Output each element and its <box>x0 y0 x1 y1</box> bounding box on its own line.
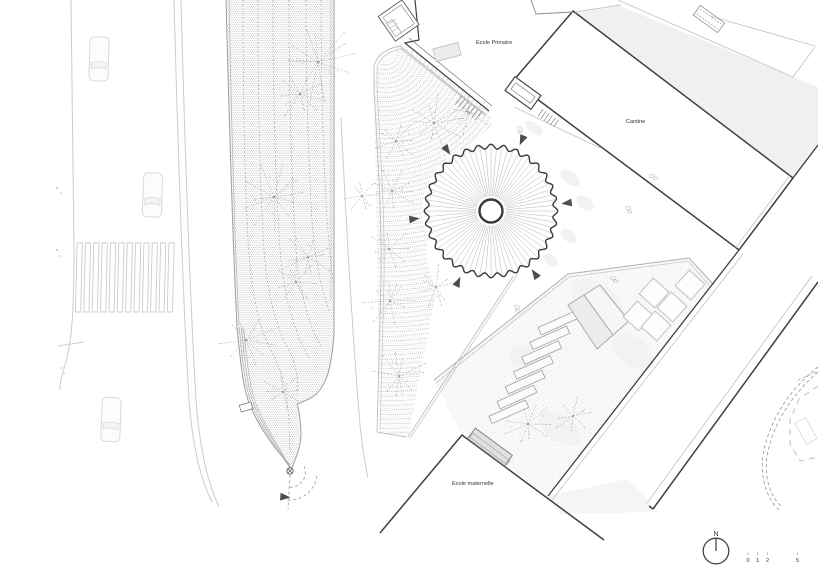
svg-text:1: 1 <box>756 558 759 564</box>
svg-text:Ecole Primaire: Ecole Primaire <box>476 40 512 46</box>
svg-text:0: 0 <box>746 558 749 564</box>
svg-text:N: N <box>713 531 718 538</box>
svg-text:2: 2 <box>766 558 769 564</box>
svg-text:Ecole maternelle: Ecole maternelle <box>452 481 494 487</box>
svg-text:5: 5 <box>796 558 799 564</box>
svg-text:Cantine: Cantine <box>626 119 645 125</box>
